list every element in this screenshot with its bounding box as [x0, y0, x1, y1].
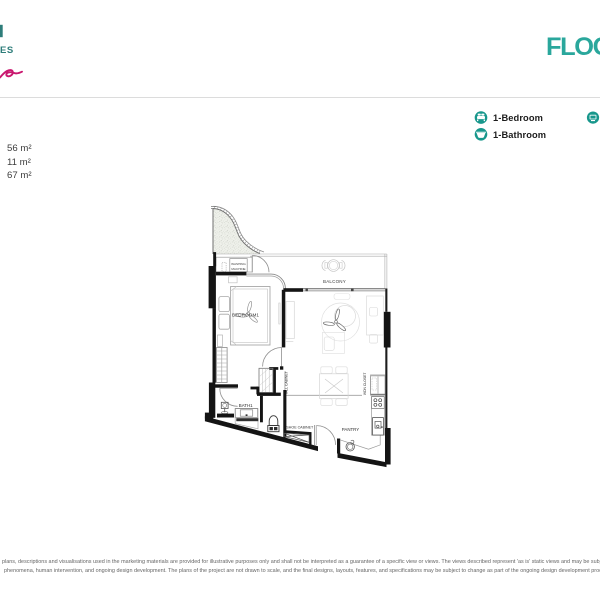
- svg-text:PANTRY: PANTRY: [342, 427, 359, 432]
- svg-text:SHOE CABINET: SHOE CABINET: [286, 426, 314, 430]
- svg-text:BALCONY: BALCONY: [323, 279, 346, 284]
- svg-text:BATH1: BATH1: [239, 403, 253, 408]
- svg-text:WASHING: WASHING: [231, 262, 246, 266]
- svg-text:MACHINE: MACHINE: [231, 267, 245, 271]
- svg-text:BEDROOM1: BEDROOM1: [232, 312, 259, 317]
- svg-text:WDN CLOSET: WDN CLOSET: [363, 372, 367, 395]
